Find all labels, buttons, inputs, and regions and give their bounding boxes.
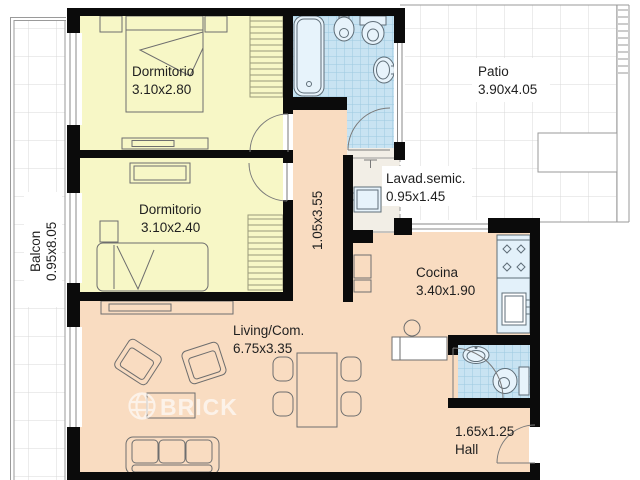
watermark-text: BRICK — [160, 394, 238, 420]
wardrobe — [250, 16, 283, 97]
svg-text:0.95x1.45: 0.95x1.45 — [386, 189, 445, 204]
living-window — [66, 327, 82, 427]
svg-text:Hall: Hall — [455, 442, 478, 457]
svg-text:3.40x1.90: 3.40x1.90 — [416, 283, 475, 298]
svg-text:3.10x2.40: 3.10x2.40 — [141, 220, 200, 235]
svg-text:Balcon: Balcon — [28, 231, 43, 272]
bedroom1-window — [66, 33, 82, 125]
floor-plan-drawing: Dormitorio 3.10x2.80 Dormitorio 3.10x2.4… — [0, 0, 640, 480]
svg-text:3.10x2.80: 3.10x2.80 — [132, 82, 191, 97]
kitchen-fixtures — [497, 235, 530, 333]
svg-text:3.90x4.05: 3.90x4.05 — [478, 82, 537, 97]
svg-text:Lavad.semic.: Lavad.semic. — [386, 171, 466, 186]
bidet — [334, 16, 354, 41]
kitchen-sink — [502, 293, 530, 325]
svg-text:6.75x3.35: 6.75x3.35 — [233, 341, 292, 356]
entrance-opening — [529, 427, 541, 463]
kitchen-window — [412, 220, 488, 232]
toilette-sink — [463, 346, 489, 364]
svg-text:Living/Com.: Living/Com. — [233, 323, 304, 338]
closet — [248, 215, 283, 290]
svg-text:Patio: Patio — [478, 64, 509, 79]
svg-text:0.95x8.05: 0.95x8.05 — [44, 222, 59, 281]
svg-text:Dormitorio: Dormitorio — [132, 64, 194, 79]
hallway-label: 1.05x3.55 — [310, 191, 325, 250]
svg-text:Dormitorio: Dormitorio — [139, 202, 201, 217]
bathroom-window — [394, 43, 405, 142]
bedroom2-window — [66, 193, 82, 283]
bathtub — [294, 16, 324, 96]
toilette-toilet — [493, 367, 529, 395]
svg-text:1.65x1.25: 1.65x1.25 — [455, 424, 514, 439]
svg-text:Cocina: Cocina — [416, 265, 459, 280]
laundry-label: Lavad.semic. 0.95x1.45 — [382, 166, 472, 206]
toilet — [360, 16, 386, 45]
floor-plan: Dormitorio 3.10x2.80 Dormitorio 3.10x2.4… — [0, 0, 640, 480]
balcony-label: Balcon 0.95x8.05 — [24, 192, 62, 307]
patio-label: Patio 3.90x4.05 — [472, 58, 550, 102]
neighbor-wall-hatch — [618, 10, 628, 73]
patio-planter — [538, 133, 617, 172]
